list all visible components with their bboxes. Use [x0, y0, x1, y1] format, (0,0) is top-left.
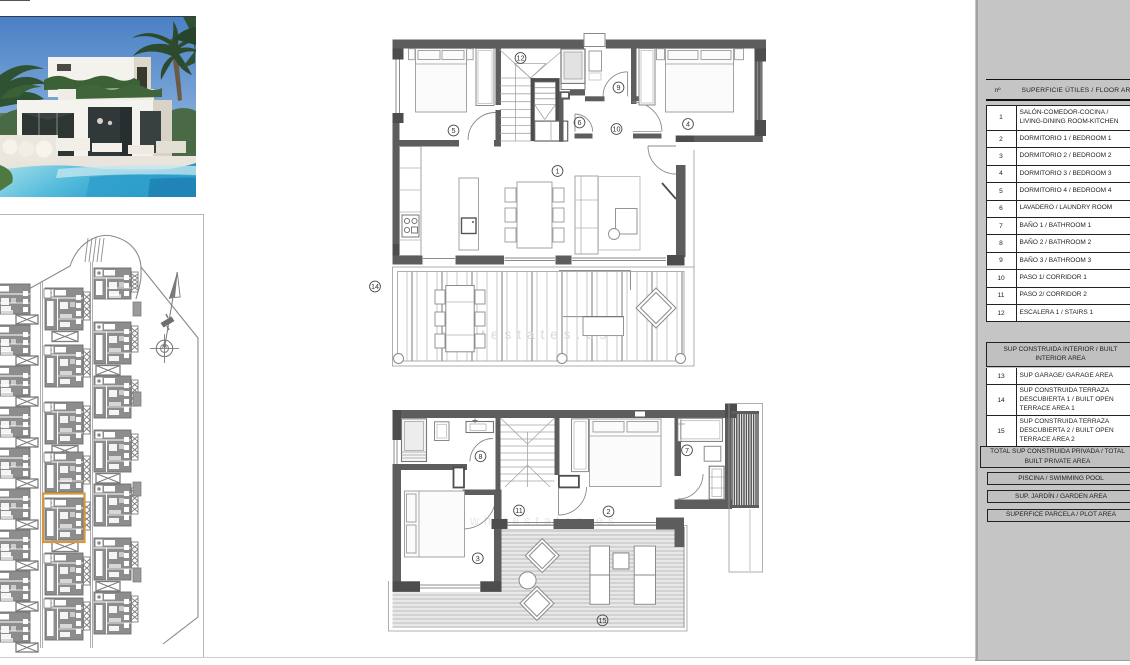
svg-text:1: 1: [556, 167, 560, 176]
svg-text:14: 14: [371, 282, 379, 291]
svg-text:10: 10: [613, 125, 621, 134]
svg-text:2: 2: [607, 507, 611, 516]
svg-text:8: 8: [479, 452, 483, 461]
svg-text:15: 15: [599, 616, 607, 625]
svg-text:11: 11: [515, 506, 522, 515]
svg-text:9: 9: [617, 83, 621, 92]
svg-text:6: 6: [578, 118, 582, 127]
svg-text:5: 5: [452, 126, 456, 135]
svg-text:12: 12: [517, 54, 525, 63]
svg-text:3: 3: [476, 554, 480, 563]
svg-text:4: 4: [686, 120, 690, 129]
svg-text:7: 7: [685, 446, 689, 455]
